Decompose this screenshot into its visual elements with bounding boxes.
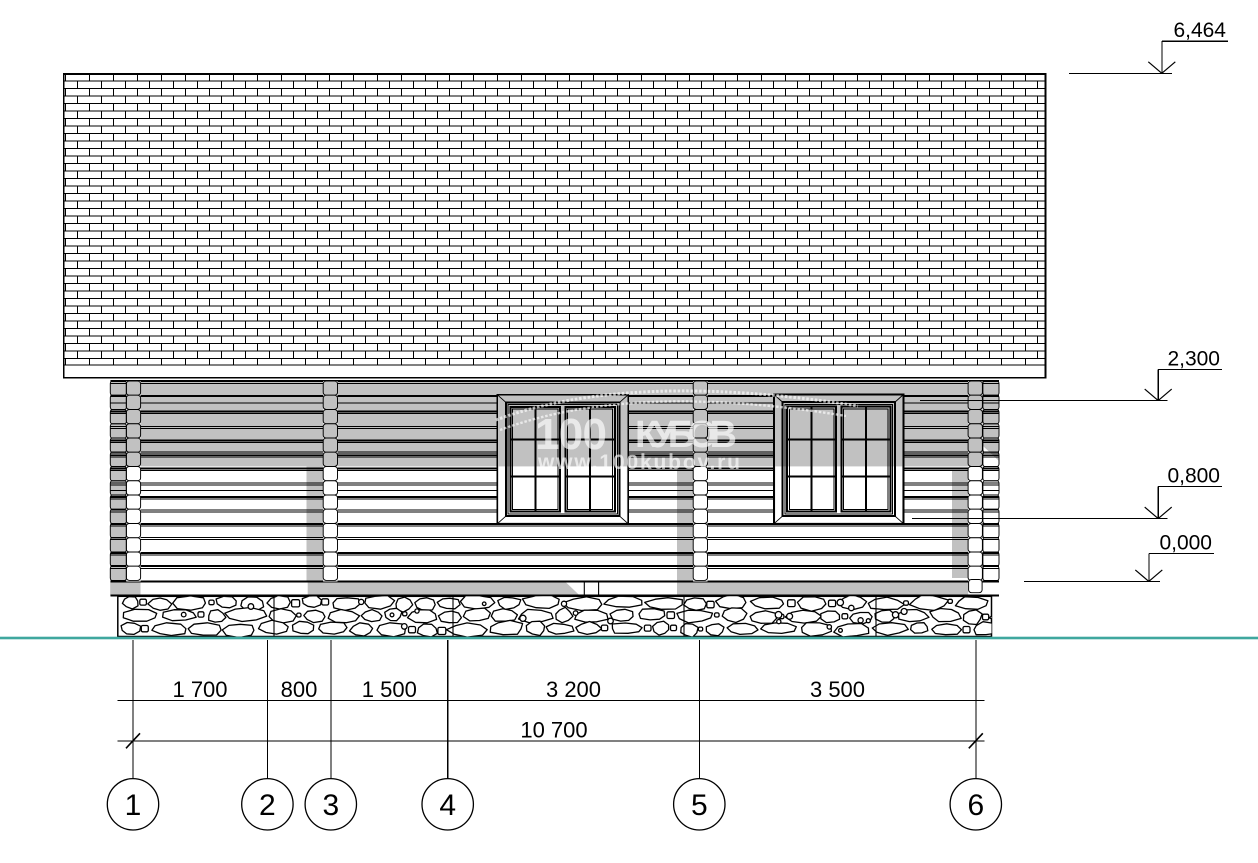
svg-text:0,000: 0,000	[1159, 531, 1212, 554]
svg-text:1 700: 1 700	[172, 677, 227, 702]
svg-text:5: 5	[691, 789, 708, 822]
svg-text:6: 6	[967, 789, 984, 822]
svg-text:6,464: 6,464	[1173, 19, 1226, 42]
svg-text:2: 2	[259, 789, 276, 822]
svg-text:4: 4	[439, 789, 456, 822]
svg-text:3 200: 3 200	[546, 677, 601, 702]
svg-text:3 500: 3 500	[810, 677, 865, 702]
svg-text:800: 800	[281, 677, 318, 702]
svg-text:1: 1	[125, 789, 142, 822]
svg-text:10 700: 10 700	[520, 717, 587, 742]
svg-text:КУБОВ: КУБОВ	[635, 414, 737, 456]
svg-text:1 500: 1 500	[362, 677, 417, 702]
svg-text:3: 3	[322, 789, 339, 822]
svg-text:2,300: 2,300	[1167, 347, 1220, 370]
svg-text:0,800: 0,800	[1167, 465, 1220, 488]
